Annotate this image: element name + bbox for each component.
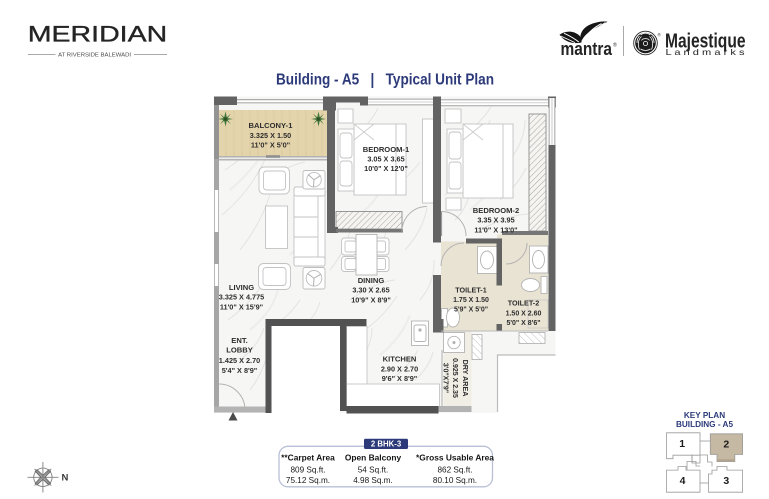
svg-text:80.10 Sq.m.: 80.10 Sq.m. [433, 476, 477, 485]
svg-text:4: 4 [680, 475, 686, 487]
svg-text:BUILDING - A5: BUILDING - A5 [676, 420, 733, 429]
svg-text:4.98 Sq.m.: 4.98 Sq.m. [353, 476, 393, 485]
svg-text:Building - A5 | Typical Un: Building - A5 | Typical Unit Plan [276, 72, 494, 89]
svg-text:862 Sq.ft.: 862 Sq.ft. [437, 465, 472, 474]
svg-text:1.75 X 1.50: 1.75 X 1.50 [453, 297, 489, 304]
svg-text:KEY PLAN: KEY PLAN [684, 411, 725, 420]
svg-text:BALCONY-1: BALCONY-1 [249, 121, 294, 130]
svg-text:MERIDIAN: MERIDIAN [28, 21, 168, 46]
svg-text:**Carpet Area: **Carpet Area [281, 453, 335, 463]
svg-text:75.12 Sq.m.: 75.12 Sq.m. [286, 476, 330, 485]
svg-text:DRY AREA: DRY AREA [461, 360, 470, 397]
svg-text:3.325 X 4.775: 3.325 X 4.775 [219, 293, 264, 302]
svg-text:1.425 X 2.70: 1.425 X 2.70 [219, 356, 260, 365]
svg-text:2: 2 [723, 439, 729, 451]
svg-text:2 BHK-3: 2 BHK-3 [371, 440, 402, 449]
svg-text:54 Sq.ft.: 54 Sq.ft. [358, 465, 389, 474]
svg-text:3.325 X 1.50: 3.325 X 1.50 [250, 131, 291, 140]
svg-text:N: N [62, 473, 69, 484]
svg-text:10'9" X 8'9": 10'9" X 8'9" [351, 295, 391, 304]
svg-text:BEDROOM-1: BEDROOM-1 [363, 145, 410, 154]
svg-text:LIVING: LIVING [229, 283, 254, 292]
svg-text:5'0" X 8'6": 5'0" X 8'6" [506, 320, 540, 327]
svg-text:Open Balcony: Open Balcony [345, 453, 402, 463]
svg-text:11'0" X 15'9": 11'0" X 15'9" [220, 302, 263, 311]
svg-text:KITCHEN: KITCHEN [383, 355, 417, 364]
svg-text:TOILET-2: TOILET-2 [508, 299, 539, 308]
svg-text:2.90 X 2.70: 2.90 X 2.70 [381, 365, 418, 374]
svg-text:3: 3 [723, 475, 729, 487]
svg-text:5'4" X 8'9": 5'4" X 8'9" [222, 366, 258, 375]
svg-text:3.05 X 3.65: 3.05 X 3.65 [367, 155, 404, 164]
svg-text:11'0" X 5'0": 11'0" X 5'0" [251, 141, 290, 150]
svg-text:1: 1 [679, 438, 685, 450]
svg-text:10'0" X 12'0": 10'0" X 12'0" [364, 164, 408, 173]
svg-text:*Gross Usable Area: *Gross Usable Area [416, 453, 494, 463]
svg-text:®: ® [613, 42, 617, 49]
svg-text:3.35 X 3.95: 3.35 X 3.95 [477, 216, 514, 225]
svg-text:809 Sq.ft.: 809 Sq.ft. [290, 465, 325, 474]
svg-text:11'0" X 13'0": 11'0" X 13'0" [474, 225, 517, 234]
svg-text:9'6" X 8'9": 9'6" X 8'9" [382, 374, 418, 383]
svg-text:3'0"X7'9": 3'0"X7'9" [442, 363, 449, 393]
svg-text:ENT.: ENT. [231, 336, 247, 345]
svg-text:0.925 X 2.35: 0.925 X 2.35 [451, 358, 458, 398]
svg-text:LOBBY: LOBBY [226, 346, 253, 355]
svg-text:1.50 X 2.60: 1.50 X 2.60 [506, 310, 542, 317]
svg-text:TOILET-1: TOILET-1 [455, 286, 486, 295]
svg-text:L a n d m a r k s: L a n d m a r k s [666, 48, 745, 57]
svg-text:DINING: DINING [358, 276, 385, 285]
svg-text:5'9" X 5'0": 5'9" X 5'0" [454, 307, 488, 314]
svg-text:mantra: mantra [561, 38, 613, 59]
svg-text:3.30 X 2.65: 3.30 X 2.65 [352, 286, 389, 295]
svg-text:AT RIVERSIDE BALEWADI: AT RIVERSIDE BALEWADI [58, 52, 131, 58]
svg-text:BEDROOM-2: BEDROOM-2 [473, 206, 519, 215]
